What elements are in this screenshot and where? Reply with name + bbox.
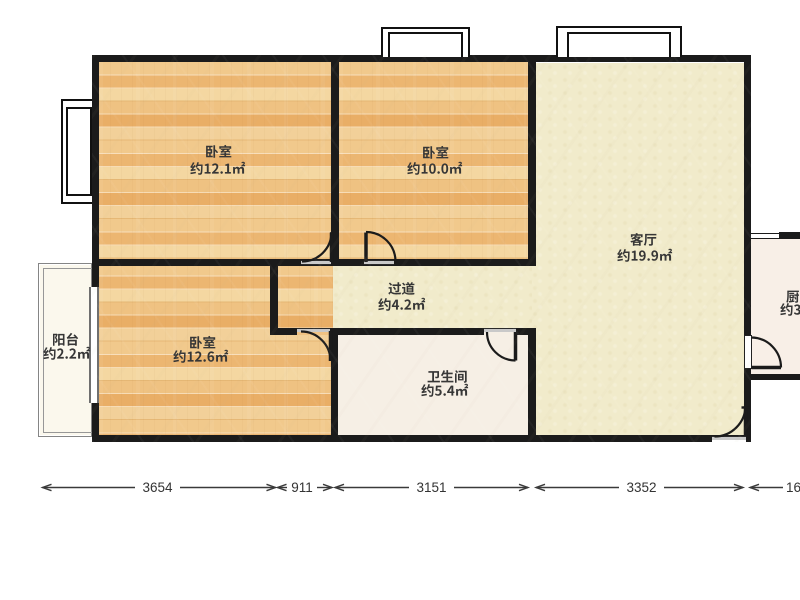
svg-text:3352: 3352 [626,480,656,495]
svg-text:3654: 3654 [142,480,173,495]
svg-text:1670: 1670 [786,480,800,495]
svg-text:911: 911 [291,480,313,495]
svg-text:3151: 3151 [416,480,446,495]
